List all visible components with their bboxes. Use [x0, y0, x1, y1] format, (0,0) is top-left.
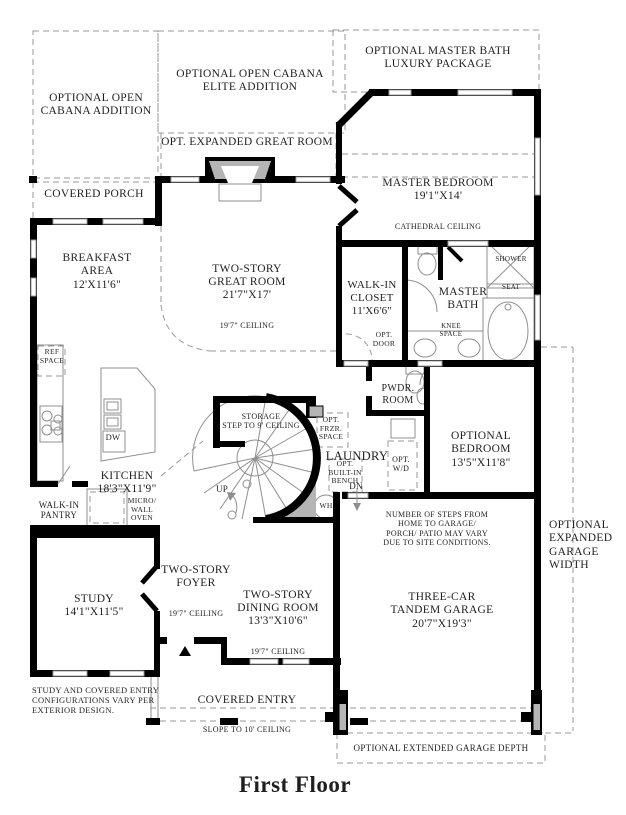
- opt-door-swing-icon: [346, 334, 372, 360]
- label-study: STUDY 14'1"X11'5": [64, 593, 123, 620]
- label-opt-expanded-great-room: OPT. EXPANDED GREAT ROOM: [161, 136, 333, 149]
- label-dining-group: TWO-STORY DINING ROOM 13'3"X10'6" 19'7" …: [237, 570, 319, 675]
- label-dining-note: 19'7" CEILING: [237, 647, 319, 656]
- label-master-bedroom: MASTER BEDROOM 19'1"X14': [382, 177, 493, 204]
- label-foyer: TWO-STORY FOYER: [161, 564, 231, 591]
- hearth: [219, 184, 261, 201]
- floor-plan-page: OPTIONAL OPEN CABANA ADDITION OPTIONAL O…: [0, 0, 626, 815]
- label-ref-space: REF SPACE: [40, 348, 64, 365]
- fireplace-icon: [205, 157, 275, 183]
- label-foyer-group: TWO-STORY FOYER 19'7" CEILING: [161, 545, 231, 637]
- label-covered-entry-group: COVERED ENTRY SLOPE TO 10' CEILING: [198, 675, 297, 753]
- label-foyer-note: 19'7" CEILING: [161, 609, 231, 618]
- label-opt-freezer: OPT. FRZR. SPACE: [319, 416, 343, 442]
- label-study-config-note: STUDY AND COVERED ENTRY CONFIGURATIONS V…: [32, 686, 159, 716]
- label-expanded-garage-width: OPTIONAL EXPANDED GARAGE WIDTH: [549, 519, 612, 572]
- label-master-bedroom-group: MASTER BEDROOM 19'1"X14' CATHEDRAL CEILI…: [382, 158, 493, 250]
- label-wh: WH: [319, 502, 332, 511]
- kitchen-counter: [37, 345, 63, 481]
- label-knee-space: KNEE SPACE: [440, 322, 463, 338]
- label-covered-porch: COVERED PORCH: [44, 188, 143, 201]
- label-shower: SHOWER: [495, 255, 526, 263]
- label-extended-garage-depth: OPTIONAL EXTENDED GARAGE DEPTH: [354, 743, 529, 753]
- label-master-bath: MASTER BATH: [439, 286, 487, 313]
- label-great-room: TWO-STORY GREAT ROOM 21'7"X17': [208, 263, 285, 303]
- label-breakfast-area: BREAKFAST AREA 12'X11'6": [63, 252, 132, 292]
- label-optional-cabana-elite: OPTIONAL OPEN CABANA ELITE ADDITION: [176, 68, 323, 95]
- up-arrow-icon: [227, 492, 237, 513]
- label-opt-door: OPT. DOOR: [373, 331, 395, 348]
- label-opt-wd: OPT. W/D: [392, 455, 410, 474]
- label-great-room-note: 19'7" CEILING: [208, 321, 285, 330]
- label-optional-bedroom: OPTIONAL BEDROOM 13'5"X11'8": [451, 430, 511, 470]
- label-dn: DN: [349, 481, 363, 491]
- label-great-room-group: TWO-STORY GREAT ROOM 21'7"X17' 19'7" CEI…: [208, 244, 285, 349]
- label-master-bedroom-note: CATHEDRAL CEILING: [382, 222, 493, 231]
- tub-icon: [483, 298, 534, 364]
- label-seat: SEAT: [502, 283, 520, 291]
- label-optional-cabana: OPTIONAL OPEN CABANA ADDITION: [41, 92, 152, 119]
- label-garage-steps-note: NUMBER OF STEPS FROM HOME TO GARAGE/ POR…: [383, 510, 491, 547]
- label-dishwasher: DW: [106, 433, 121, 443]
- label-up: UP: [216, 484, 228, 494]
- label-micro-wall-oven: MICRO/ WALL OVEN: [128, 497, 156, 523]
- sink-icon: [458, 339, 480, 357]
- label-walk-in-closet: WALK-IN CLOSET 11'X6'6": [347, 279, 396, 317]
- door-swing-icon: [405, 280, 437, 312]
- page-title: First Floor: [239, 772, 351, 798]
- label-walk-in-pantry: WALK-IN PANTRY: [39, 500, 80, 521]
- label-kitchen: KITCHEN 18'3"X11'9": [97, 470, 156, 497]
- label-covered-entry: COVERED ENTRY: [198, 694, 297, 707]
- washer-dryer-icon: [391, 419, 415, 438]
- cooktop-icon: [40, 406, 62, 442]
- label-pwdr-room: PWDR. ROOM: [382, 383, 415, 406]
- label-storage: STORAGE STEP TO 9' CEILING: [222, 412, 300, 431]
- label-optional-master-bath: OPTIONAL MASTER BATH LUXURY PACKAGE: [365, 45, 511, 72]
- label-covered-entry-note: SLOPE TO 10' CEILING: [198, 725, 297, 734]
- front-door-icon: [179, 646, 191, 656]
- kitchen-island-icon: [101, 368, 155, 461]
- label-garage: THREE-CAR TANDEM GARAGE 20'7"X19'3": [391, 591, 494, 631]
- label-dining-room: TWO-STORY DINING ROOM 13'3"X10'6": [237, 589, 319, 629]
- sink-icon: [414, 339, 436, 357]
- toilet-icon: [418, 246, 437, 275]
